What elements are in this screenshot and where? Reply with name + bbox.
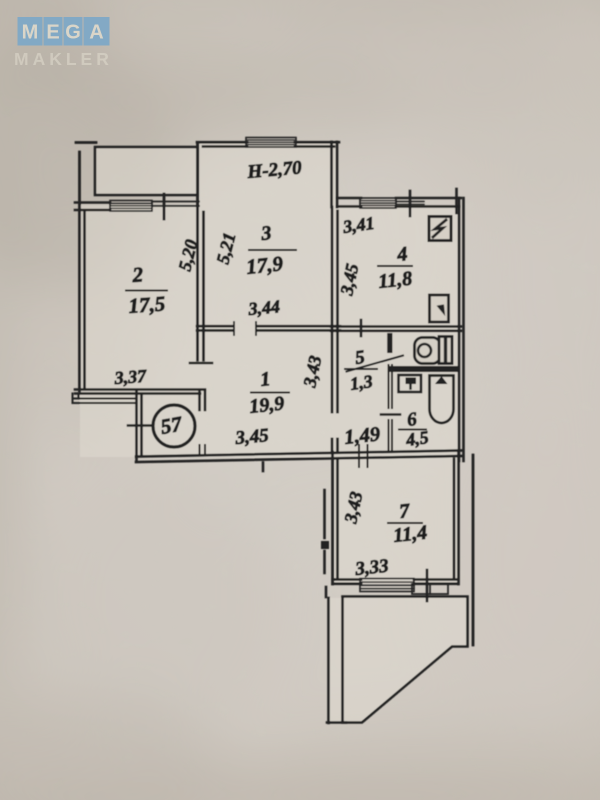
svg-text:M: M [22,22,39,44]
svg-text:E: E [46,22,59,44]
svg-text:3,44: 3,44 [247,296,281,319]
svg-text:3,33: 3,33 [353,556,389,580]
svg-text:G: G [65,22,81,44]
svg-text:4,5: 4,5 [404,427,430,450]
svg-text:17,5: 17,5 [128,291,166,318]
svg-text:11,4: 11,4 [392,522,428,547]
svg-text:MAKLER: MAKLER [14,49,113,69]
svg-text:19,9: 19,9 [248,392,285,418]
svg-text:11,8: 11,8 [377,268,413,293]
svg-text:4: 4 [395,243,408,266]
svg-text:3,37: 3,37 [113,366,148,388]
svg-text:17,9: 17,9 [245,251,285,279]
svg-text:A: A [89,22,103,44]
svg-text:1,49: 1,49 [343,423,381,449]
svg-text:3,45: 3,45 [234,425,270,449]
svg-text:2: 2 [131,262,145,287]
svg-text:3: 3 [259,222,272,245]
svg-text:1,3: 1,3 [349,371,374,394]
